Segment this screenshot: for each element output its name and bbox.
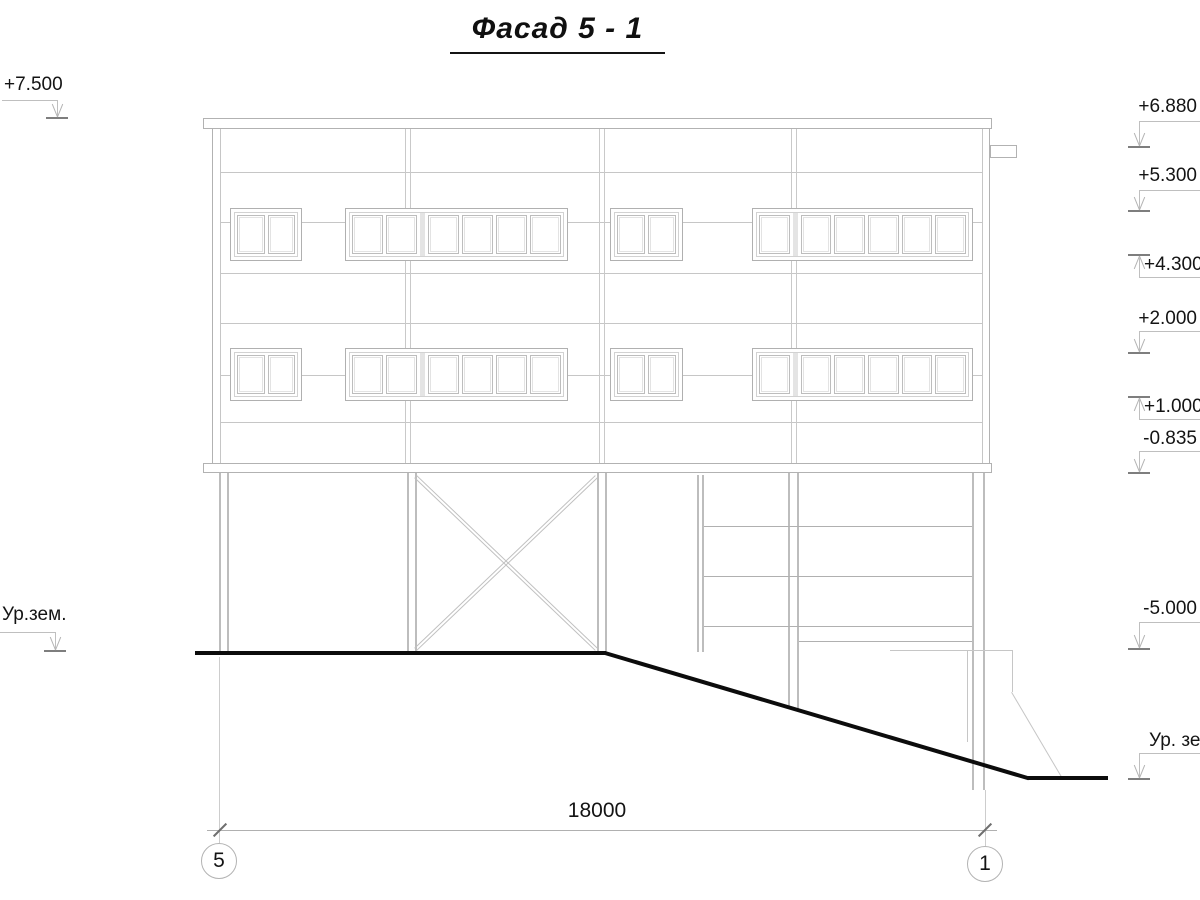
- window-row2-wide-left: [345, 348, 568, 401]
- elevation-leader-4300: [1139, 277, 1200, 278]
- elevation-leader-5300: [1139, 190, 1200, 191]
- window-row2-small-right: [610, 348, 683, 401]
- ground-line-slope: [604, 651, 1029, 780]
- column-4: [788, 473, 799, 709]
- elevation-label-0835: -0.835: [1143, 428, 1197, 450]
- elevation-leader-1000: [1139, 419, 1200, 420]
- window-row2-wide-right: [752, 348, 973, 401]
- window-row1-small-left: [230, 208, 302, 261]
- axis-extension-right: [985, 790, 986, 846]
- elevation-arrow-0835: [1128, 459, 1150, 474]
- elevation-arrow-6880: [1128, 133, 1150, 148]
- window-row1-small-right: [610, 208, 683, 261]
- elevation-label-ground-left: Ур.зем.: [2, 604, 66, 626]
- elevation-label-6880: +6.880: [1138, 96, 1197, 118]
- elevation-leader-5000: [1139, 622, 1200, 623]
- elevation-label-5000: -5.000: [1143, 598, 1197, 620]
- stair-line-4: [799, 641, 972, 642]
- window-row1-wide-left: [345, 208, 568, 261]
- elevation-drop-1000: [1139, 399, 1140, 419]
- stair-line-2: [704, 576, 972, 577]
- column-5: [972, 473, 985, 790]
- foundation-right-line: [1012, 650, 1013, 692]
- elevation-arrow-2000: [1128, 339, 1150, 354]
- foundation-slope-line: [1011, 692, 1062, 778]
- panel-joint-1: [405, 129, 411, 463]
- elevation-arrow-ground-left: [44, 637, 66, 652]
- axis-bubble-5: 5: [201, 843, 237, 879]
- stair-line-1: [704, 526, 972, 527]
- parapet-band: [203, 118, 992, 129]
- elevation-leader-2000: [1139, 331, 1200, 332]
- elevation-label-ground-right: Ур. зем.: [1149, 730, 1200, 752]
- elevation-arrow-5000: [1128, 635, 1150, 650]
- elevation-arrow-5300: [1128, 197, 1150, 212]
- elevation-label-1000: +1.000: [1144, 396, 1200, 418]
- elevation-drop-4300: [1139, 257, 1140, 277]
- foundation-top-line: [890, 650, 1012, 651]
- elevation-arrow-ground-right: [1128, 765, 1150, 780]
- column-2: [407, 473, 417, 653]
- bottom-slab-band: [203, 463, 992, 473]
- dimension-line: [207, 830, 997, 831]
- ground-line-upper: [195, 651, 606, 655]
- elevation-label-4300: +4.300: [1144, 254, 1200, 276]
- elevation-leader-ground-left: [0, 632, 55, 633]
- window-row1-wide-right: [752, 208, 973, 261]
- elevation-label-7500: +7.500: [4, 74, 63, 96]
- elevation-label-2000: +2.000: [1138, 308, 1197, 330]
- roof-outlet-protrusion: [990, 145, 1017, 158]
- panel-joint-2: [599, 129, 605, 463]
- facade-drawing-sheet: Фасад 5 - 1: [0, 0, 1200, 900]
- elevation-leader-0835: [1139, 451, 1200, 452]
- column-stair: [697, 475, 704, 652]
- stair-line-3: [704, 626, 972, 627]
- window-row2-small-left: [230, 348, 302, 401]
- column-3: [597, 473, 607, 653]
- axis-label-1: 1: [979, 852, 991, 876]
- foundation-left-line: [967, 650, 968, 742]
- dimension-value: 18000: [517, 799, 677, 823]
- elevation-leader-ground-right: [1139, 753, 1200, 754]
- elevation-leader-6880: [1139, 121, 1200, 122]
- drawing-title: Фасад 5 - 1: [450, 12, 665, 54]
- elevation-label-5300: +5.300: [1138, 165, 1197, 187]
- panel-joint-3: [791, 129, 797, 463]
- axis-extension-left: [219, 657, 220, 843]
- axis-bubble-1: 1: [967, 846, 1003, 882]
- column-1: [219, 473, 229, 653]
- elevation-leader-7500: [2, 100, 58, 101]
- elevation-arrow-7500: [46, 104, 68, 119]
- ground-line-lower: [1028, 776, 1108, 780]
- axis-label-5: 5: [213, 849, 225, 873]
